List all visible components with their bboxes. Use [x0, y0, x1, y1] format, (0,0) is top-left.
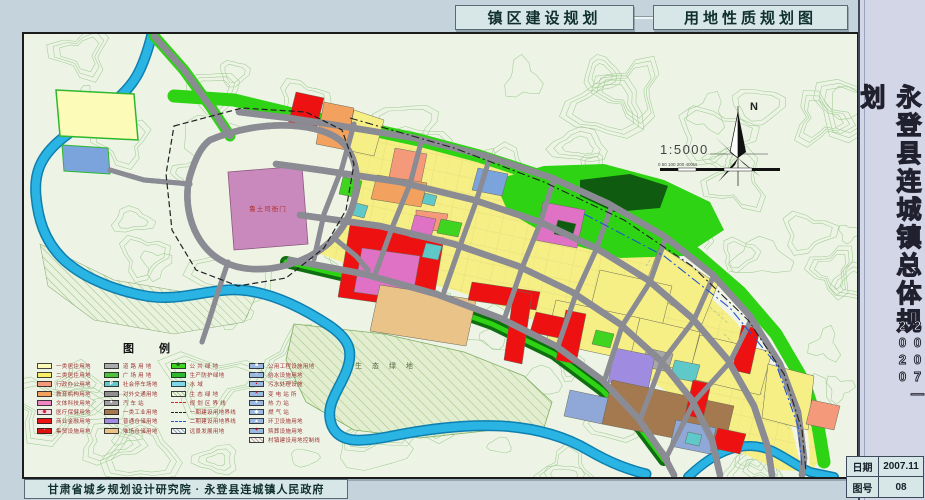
legend-item: ○给水设施用地	[249, 370, 320, 379]
legend-swatch	[104, 391, 119, 397]
legend-item: 规 划 区 界 线	[171, 398, 236, 407]
legend-item-label: 给水设施用地	[268, 371, 303, 379]
legend-item-label: 公用工程设施用地	[268, 362, 314, 370]
legend-swatch	[104, 409, 119, 415]
legend-item-label: 二期建设用地界线	[190, 417, 236, 425]
legend-item: 道 路 用 地	[104, 361, 158, 370]
plan-period: 2007—2020	[860, 318, 925, 468]
legend-swatch: P	[104, 381, 119, 387]
legend-item-label: 堆场仓储用地	[123, 427, 158, 435]
legend-item-label: 广 场 用 地	[123, 371, 152, 379]
legend-swatch	[104, 418, 119, 424]
legend-swatch	[171, 391, 186, 397]
legend-symbol: ◆	[250, 410, 263, 414]
legend-swatch: ▲	[249, 418, 264, 424]
legend-item-label: 道 路 用 地	[123, 362, 152, 370]
legend-symbol: ▲	[250, 419, 263, 423]
legend-item-label: 汽 车 站	[123, 399, 144, 407]
legend-swatch: ○	[249, 372, 264, 378]
legend-symbol: ×	[250, 392, 263, 396]
legend-item-label: 行政办公用地	[56, 380, 91, 388]
legend-item-label: 水 域	[190, 380, 203, 388]
heritage-label: 鲁土司衙门	[249, 204, 287, 213]
map-frame: N 1:5000 0 50 100 200 400M 鲁土司衙门 生 态 绿 地…	[22, 32, 859, 479]
legend-item-label: 社会停车场地	[123, 380, 158, 388]
legend-item: ◦集贸设施用地	[37, 426, 91, 435]
sidebar: 永登县连城镇总体规划 2007—2020	[858, 0, 925, 500]
legend-swatch	[37, 391, 52, 397]
legend-item: 村镇建设用地控制线	[249, 435, 320, 444]
legend-item-label: 环卫设施用地	[268, 417, 303, 425]
legend-item-label: 一类工业用地	[123, 408, 158, 416]
legend-item: ⊕医疗保健用地	[37, 407, 91, 416]
legend-symbol: ■	[250, 364, 263, 368]
legend-item-label: 集贸设施用地	[56, 427, 91, 435]
legend-swatch	[37, 363, 52, 369]
legend-item: +殡葬设施用地	[249, 426, 320, 435]
legend-swatch	[37, 372, 52, 378]
scale-ticks: 0 50 100 200 400M	[658, 162, 697, 167]
legend-item-label: 一期建设用地界线	[190, 408, 236, 416]
legend-swatch	[104, 428, 119, 434]
legend-item: 商业金融用地	[37, 417, 91, 426]
plan-sheet: 镇区建设规划 用地性质规划图	[0, 0, 925, 500]
legend-item: 广 场 用 地	[104, 370, 158, 379]
legend-symbol: ○	[250, 373, 263, 377]
legend-item: 一类居住用地	[37, 361, 91, 370]
legend-item: 堆场仓储用地	[104, 426, 158, 435]
legend-item-label: 文体科技用地	[56, 399, 91, 407]
legend-item: ◆燃 气 站	[249, 407, 320, 416]
legend-item: ■公用工程设施用地	[249, 361, 320, 370]
legend-swatch: ◆	[249, 409, 264, 415]
legend-item: ●汽 车 站	[104, 398, 158, 407]
drawing-title: 永登县连城镇总体规划	[860, 84, 925, 354]
legend-item-label: 规 划 区 界 线	[190, 399, 226, 407]
date-value: 2007.11	[879, 457, 923, 477]
scale-text: 1:5000	[660, 142, 709, 157]
legend-item: 二类居住用地	[37, 370, 91, 379]
legend-swatch: ▪	[249, 381, 264, 387]
legend-swatch	[171, 400, 186, 406]
legend-item-label: 对外交通用地	[123, 390, 158, 398]
info-table: 日期 2007.11 图号 08	[846, 456, 924, 498]
legend-swatch	[171, 372, 186, 378]
date-label: 日期	[847, 457, 879, 477]
credit-text: 甘肃省城乡规划设计研究院 · 永登县连城镇人民政府	[48, 481, 325, 497]
legend-item: 生产防护绿地	[171, 370, 236, 379]
legend-symbol: ◦	[38, 429, 51, 433]
legend-item-label: 医疗保健用地	[56, 408, 91, 416]
legend-item: ▲环卫设施用地	[249, 417, 320, 426]
legend-swatch: ●	[249, 400, 264, 406]
title-left-label: 镇区建设规划	[487, 7, 601, 28]
credit-box: 甘肃省城乡规划设计研究院 · 永登县连城镇人民政府	[24, 479, 348, 499]
legend: 图 例 一类居住用地二类居住用地行政办公用地教育机构用地文体科技用地⊕医疗保健用…	[37, 340, 339, 445]
legend-item: 对外交通用地	[104, 389, 158, 398]
title-connector	[632, 16, 653, 19]
legend-item-label: 变 电 站 所	[268, 390, 297, 398]
legend-symbol: ▪	[250, 382, 263, 386]
legend-swatch: ◦	[37, 428, 52, 434]
legend-item: 生 态 绿 地	[171, 389, 236, 398]
legend-item-label: 燃 气 站	[268, 408, 289, 416]
sheet-number-label: 图号	[847, 477, 879, 497]
legend-swatch	[171, 409, 186, 415]
legend-symbol: ●	[105, 401, 118, 405]
legend-item-label: 村镇建设用地控制线	[268, 436, 320, 444]
legend-symbol: P	[105, 382, 118, 386]
title-left: 镇区建设规划	[455, 5, 634, 30]
legend-swatch: ■	[249, 363, 264, 369]
legend-symbol: ●	[250, 401, 263, 405]
legend-columns: 一类居住用地二类居住用地行政办公用地教育机构用地文体科技用地⊕医疗保健用地商业金…	[37, 361, 339, 445]
legend-item-label: 远景发展用地	[190, 427, 225, 435]
legend-item-label: 公 共 绿 地	[190, 362, 219, 370]
legend-item: ●热 力 站	[249, 398, 320, 407]
legend-item-label: 污水处理设施	[268, 380, 303, 388]
legend-item: 水 域	[171, 380, 236, 389]
legend-swatch	[104, 372, 119, 378]
legend-symbol: +	[250, 429, 263, 433]
legend-item: 文体科技用地	[37, 398, 91, 407]
legend-swatch	[249, 437, 264, 443]
legend-item: 一类工业用地	[104, 407, 158, 416]
legend-swatch	[171, 418, 186, 424]
legend-item: P社会停车场地	[104, 380, 158, 389]
legend-item: ▪污水处理设施	[249, 380, 320, 389]
legend-swatch: ●	[104, 400, 119, 406]
legend-item: 远景发展用地	[171, 426, 236, 435]
legend-symbol: ⊕	[38, 410, 51, 414]
legend-item-label: 普通仓储用地	[123, 417, 158, 425]
legend-item-label: 生产防护绿地	[190, 371, 225, 379]
legend-swatch: +	[249, 428, 264, 434]
legend-swatch	[37, 400, 52, 406]
legend-item-label: 教育机构用地	[56, 390, 91, 398]
legend-item-label: 殡葬设施用地	[268, 427, 303, 435]
legend-swatch	[37, 418, 52, 424]
legend-swatch	[37, 381, 52, 387]
legend-item-label: 商业金融用地	[56, 417, 91, 425]
legend-item-label: 二类居住用地	[56, 371, 91, 379]
north-label: N	[750, 101, 758, 113]
legend-swatch: ×	[249, 391, 264, 397]
legend-swatch	[171, 381, 186, 387]
legend-item-label: 热 力 站	[268, 399, 289, 407]
title-right: 用地性质规划图	[653, 5, 848, 30]
legend-swatch	[104, 363, 119, 369]
residential-block	[56, 90, 138, 140]
legend-swatch: ⊕	[37, 409, 52, 415]
legend-item: 普通仓储用地	[104, 417, 158, 426]
legend-item: ×变 电 站 所	[249, 389, 320, 398]
legend-item: 一期建设用地界线	[171, 407, 236, 416]
legend-item: 教育机构用地	[37, 389, 91, 398]
legend-item: 行政办公用地	[37, 380, 91, 389]
legend-item: ✽公 共 绿 地	[171, 361, 236, 370]
legend-swatch: ✽	[171, 363, 186, 369]
title-right-label: 用地性质规划图	[684, 7, 817, 28]
legend-swatch	[171, 428, 186, 434]
legend-symbol: ✽	[172, 364, 185, 368]
sheet-number-value: 08	[879, 477, 923, 497]
legend-title: 图 例	[123, 340, 339, 356]
legend-item: 二期建设用地界线	[171, 417, 236, 426]
legend-item-label: 一类居住用地	[56, 362, 91, 370]
eco-label: 生 态 绿 地	[355, 361, 417, 370]
legend-item-label: 生 态 绿 地	[190, 390, 219, 398]
